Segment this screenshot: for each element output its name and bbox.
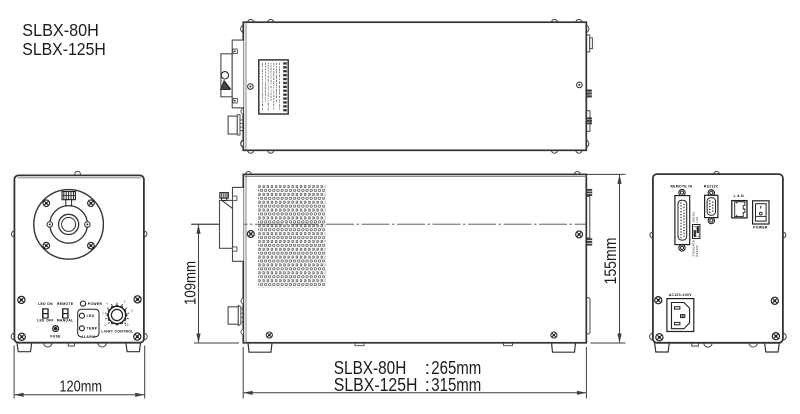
svg-text:STANDARD: STANDARD bbox=[692, 240, 696, 256]
svg-text:POWER: POWER bbox=[753, 225, 768, 229]
svg-text:SLBX-125H: SLBX-125H bbox=[334, 374, 418, 395]
svg-text:ALARM: ALARM bbox=[81, 335, 95, 339]
svg-text::: : bbox=[425, 374, 430, 395]
svg-text:155mm: 155mm bbox=[602, 238, 620, 285]
svg-text:RS232C: RS232C bbox=[695, 245, 699, 257]
svg-text:SERIAL: SERIAL bbox=[692, 211, 696, 222]
svg-text:AC100-240V: AC100-240V bbox=[669, 293, 692, 297]
svg-text:315mm: 315mm bbox=[431, 374, 481, 395]
svg-text:LAN: LAN bbox=[695, 217, 699, 223]
svg-text:RS232C: RS232C bbox=[704, 184, 719, 188]
svg-text:L A N: L A N bbox=[734, 194, 745, 198]
svg-text:109mm: 109mm bbox=[183, 261, 200, 305]
svg-text:LED ON: LED ON bbox=[38, 302, 53, 306]
svg-text:SLBX-125H: SLBX-125H bbox=[22, 39, 106, 59]
svg-text:TEMP: TEMP bbox=[87, 327, 98, 331]
svg-text:0: 0 bbox=[105, 323, 107, 327]
svg-text:10: 10 bbox=[125, 323, 129, 327]
svg-text:POWER: POWER bbox=[88, 302, 103, 306]
svg-text:LED: LED bbox=[87, 314, 95, 318]
svg-text:LIGHT CONTROL: LIGHT CONTROL bbox=[101, 330, 133, 334]
svg-text:SLBX-80H: SLBX-80H bbox=[22, 20, 99, 40]
svg-text:MANUAL: MANUAL bbox=[57, 319, 74, 323]
svg-text:REMOTE: REMOTE bbox=[57, 302, 74, 306]
svg-text:REMOTE IN: REMOTE IN bbox=[671, 184, 693, 188]
svg-text:120mm: 120mm bbox=[59, 378, 102, 395]
svg-text:FUSE: FUSE bbox=[50, 334, 61, 338]
svg-text:LED OFF: LED OFF bbox=[37, 319, 54, 323]
